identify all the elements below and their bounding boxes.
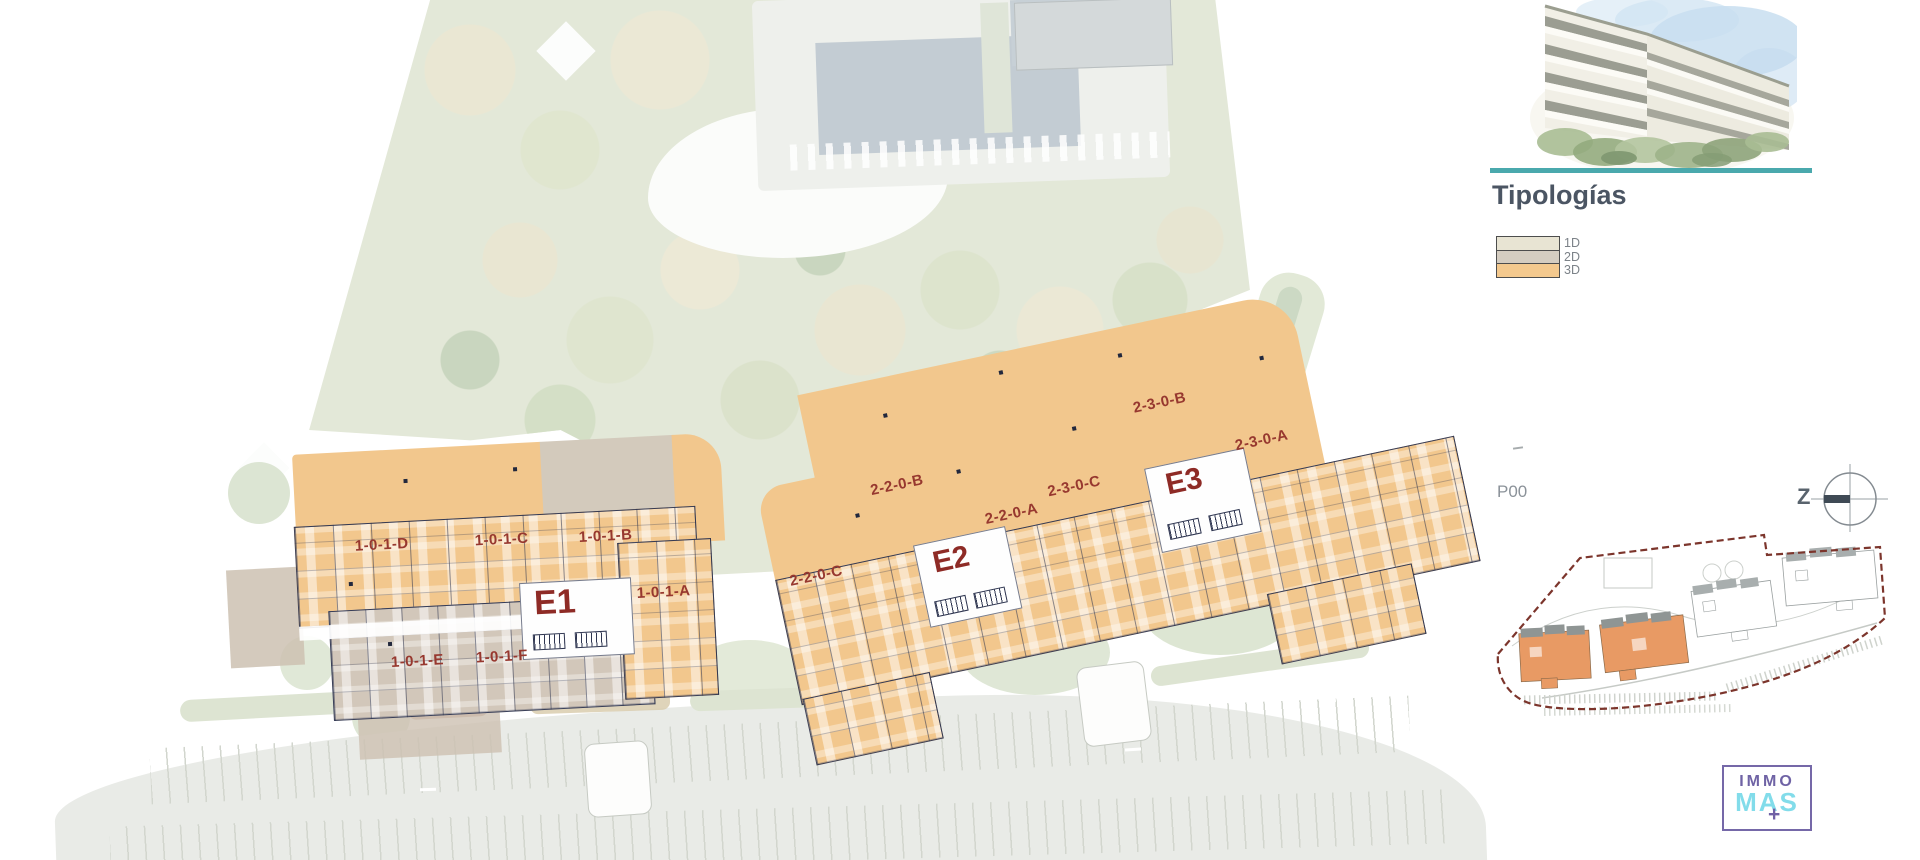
typologies-legend: 1D 2D 3D — [1496, 236, 1580, 278]
unit-label-1-0-1-D: 1-0-1-D — [354, 535, 408, 555]
stair-icon — [1208, 509, 1243, 531]
terrace-brown — [226, 567, 305, 669]
pool-green-strip — [980, 2, 1013, 133]
stair-icon — [934, 595, 969, 617]
keymap-building-highlighted — [1599, 608, 1690, 683]
keymap-building-highlighted — [1518, 623, 1591, 690]
scale-tick — [1513, 446, 1523, 449]
keymap-building-outline — [1690, 573, 1778, 646]
north-arrow: Z — [1795, 462, 1890, 534]
immomas-logo: IMMO MAS + — [1722, 765, 1812, 831]
site-plan-page: 1-0-1-D 1-0-1-C 1-0-1-B E1 1-0-1-A 1-0-1… — [0, 0, 1920, 860]
unit-label-1-0-1-A: 1-0-1-A — [636, 582, 690, 602]
unit-label-1-0-1-F: 1-0-1-F — [475, 647, 528, 667]
tree — [228, 462, 290, 524]
logo-plus-icon: + — [1768, 803, 1780, 827]
road-dash — [420, 788, 436, 792]
typologies-title: Tipologías — [1492, 180, 1627, 211]
keymap-building-outline — [1781, 543, 1878, 615]
level-label: P00 — [1497, 482, 1527, 502]
stair-icon — [973, 586, 1008, 608]
kiosk — [1075, 660, 1152, 748]
legend-label-3d: 3D — [1564, 263, 1580, 278]
unit-label-1-0-1-B: 1-0-1-B — [578, 526, 632, 546]
key-map — [1482, 528, 1894, 720]
legend-swatch-3d — [1496, 263, 1560, 278]
building-rendering-image — [1527, 0, 1797, 168]
roof-block — [1014, 0, 1173, 71]
stair-icon — [1167, 518, 1202, 540]
divider-line — [1490, 168, 1812, 173]
unit-label-1-0-1-C: 1-0-1-C — [474, 530, 528, 550]
legend-row-3d: 3D — [1496, 263, 1580, 278]
stair-icon — [533, 633, 566, 651]
logo-mas-text: MAS — [1724, 789, 1810, 815]
unit-label-1-0-1-E: 1-0-1-E — [391, 651, 445, 671]
stair-icon — [575, 631, 608, 649]
building-label-e1: E1 — [533, 582, 577, 623]
sidebar: Tipologías 1D 2D 3D P00 Z — [1480, 0, 1920, 860]
